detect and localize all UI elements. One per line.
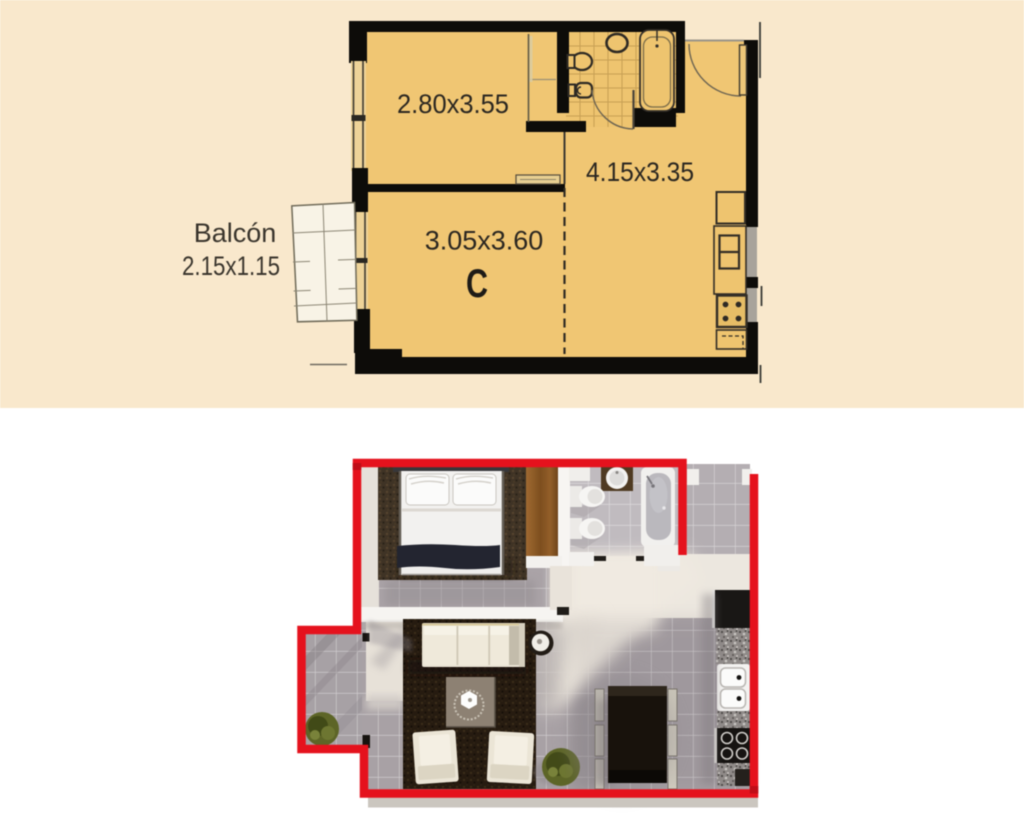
svg-text:3.05x3.60: 3.05x3.60 xyxy=(425,226,544,256)
svg-text:2.15x1.15: 2.15x1.15 xyxy=(182,251,280,281)
svg-text:4.15x3.35: 4.15x3.35 xyxy=(586,157,694,187)
svg-text:2.80x3.55: 2.80x3.55 xyxy=(397,89,509,119)
svg-text:Balcón: Balcón xyxy=(194,218,277,248)
svg-text:C: C xyxy=(466,262,488,306)
